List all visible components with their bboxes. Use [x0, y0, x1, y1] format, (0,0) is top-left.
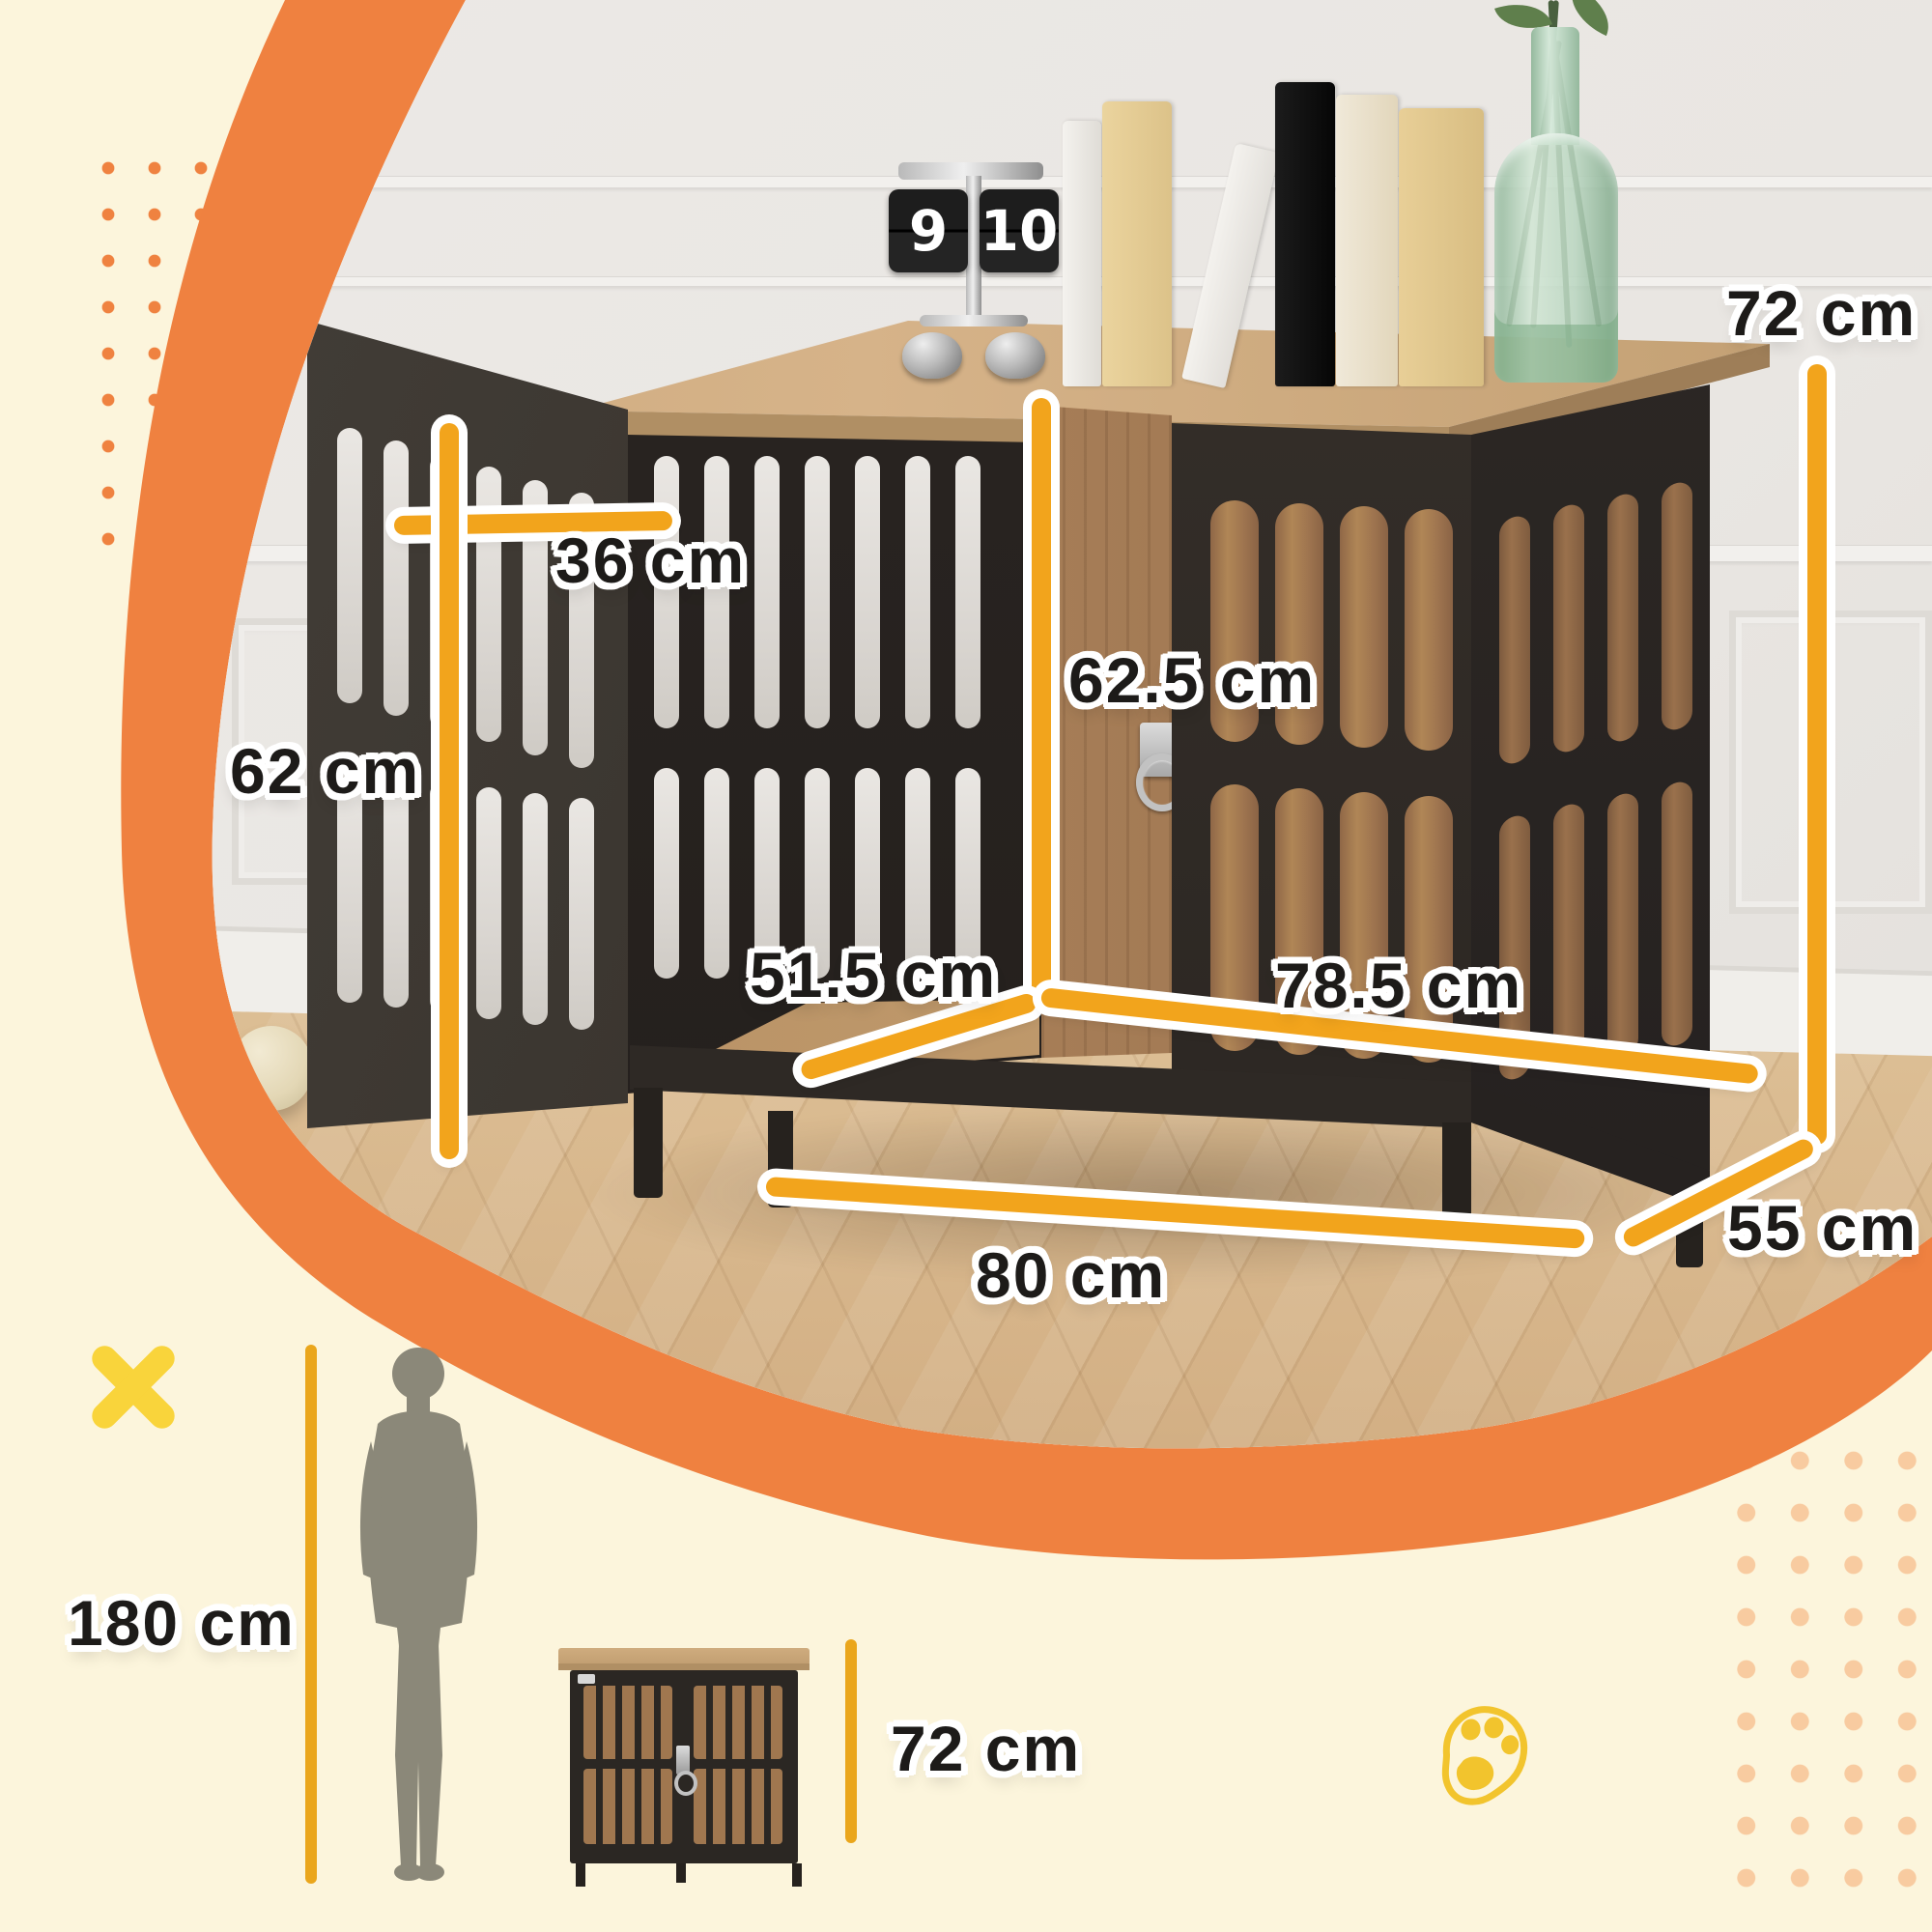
small-crate-slats [694, 1686, 782, 1759]
brand-sticker [578, 1674, 595, 1684]
small-crate-leg [676, 1863, 686, 1883]
small-crate-slats [694, 1769, 782, 1844]
dim-label-crate-height: 72 cm [891, 1721, 1081, 1776]
small-crate-ring [674, 1771, 697, 1796]
small-crate-slats [583, 1686, 672, 1759]
dim-label-person-height: 180 cm [68, 1596, 296, 1650]
infographic-canvas: { "product_diagram": { "dimensions": { "… [0, 0, 1932, 1932]
crate-height-line [845, 1639, 857, 1843]
small-crate-leg [792, 1863, 802, 1887]
scale-comparison: 180 cm 72 cm [0, 0, 1932, 1932]
small-crate-slats [583, 1769, 672, 1844]
small-crate-body [570, 1670, 798, 1863]
paw-icon [1432, 1702, 1528, 1810]
person-height-line [305, 1345, 317, 1884]
person-silhouette [345, 1345, 493, 1884]
small-crate-leg [576, 1863, 585, 1887]
x-mark-icon [80, 1334, 186, 1440]
small-crate-top-edge [558, 1663, 810, 1670]
